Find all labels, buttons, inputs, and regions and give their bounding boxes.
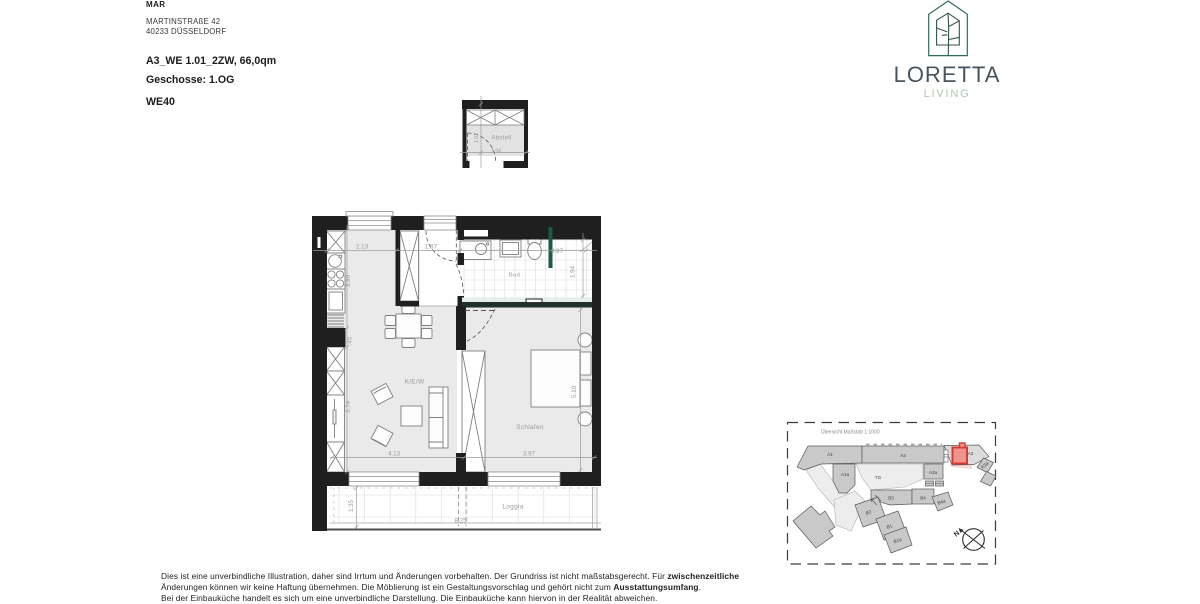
- svg-text:B3: B3: [888, 496, 894, 501]
- svg-text:Loggia: Loggia: [502, 504, 523, 511]
- svg-text:1.35: 1.35: [348, 499, 355, 512]
- svg-text:A1a: A1a: [841, 472, 850, 477]
- svg-text:5.10: 5.10: [571, 385, 578, 398]
- svg-text:1.87: 1.87: [425, 244, 438, 251]
- svg-text:1.94: 1.94: [491, 149, 501, 155]
- svg-text:Bad: Bad: [509, 273, 520, 279]
- svg-text:3.97: 3.97: [551, 248, 564, 255]
- svg-text:8.25: 8.25: [454, 518, 467, 525]
- svg-text:3.74: 3.74: [345, 400, 352, 413]
- svg-text:3.97: 3.97: [523, 451, 536, 458]
- svg-text:1.01: 1.01: [474, 133, 480, 143]
- svg-text:A1: A1: [827, 452, 833, 457]
- svg-text:Schlafen: Schlafen: [516, 424, 544, 431]
- svg-text:A3: A3: [968, 451, 974, 456]
- svg-text:.45: .45: [347, 336, 354, 345]
- svg-text:A2: A2: [900, 453, 906, 458]
- svg-text:Abstell: Abstell: [491, 136, 511, 142]
- svg-text:B4: B4: [920, 496, 926, 501]
- svg-text:1.94: 1.94: [570, 265, 577, 278]
- svg-text:3.90: 3.90: [345, 274, 352, 287]
- svg-text:2.13: 2.13: [356, 244, 369, 251]
- svg-text:A2a: A2a: [929, 470, 938, 475]
- svg-text:Übersicht Maßstab 1:1000: Übersicht Maßstab 1:1000: [821, 429, 880, 436]
- svg-text:K/E/W: K/E/W: [405, 379, 425, 386]
- svg-text:TG: TG: [875, 475, 882, 480]
- svg-text:4.13: 4.13: [388, 451, 401, 458]
